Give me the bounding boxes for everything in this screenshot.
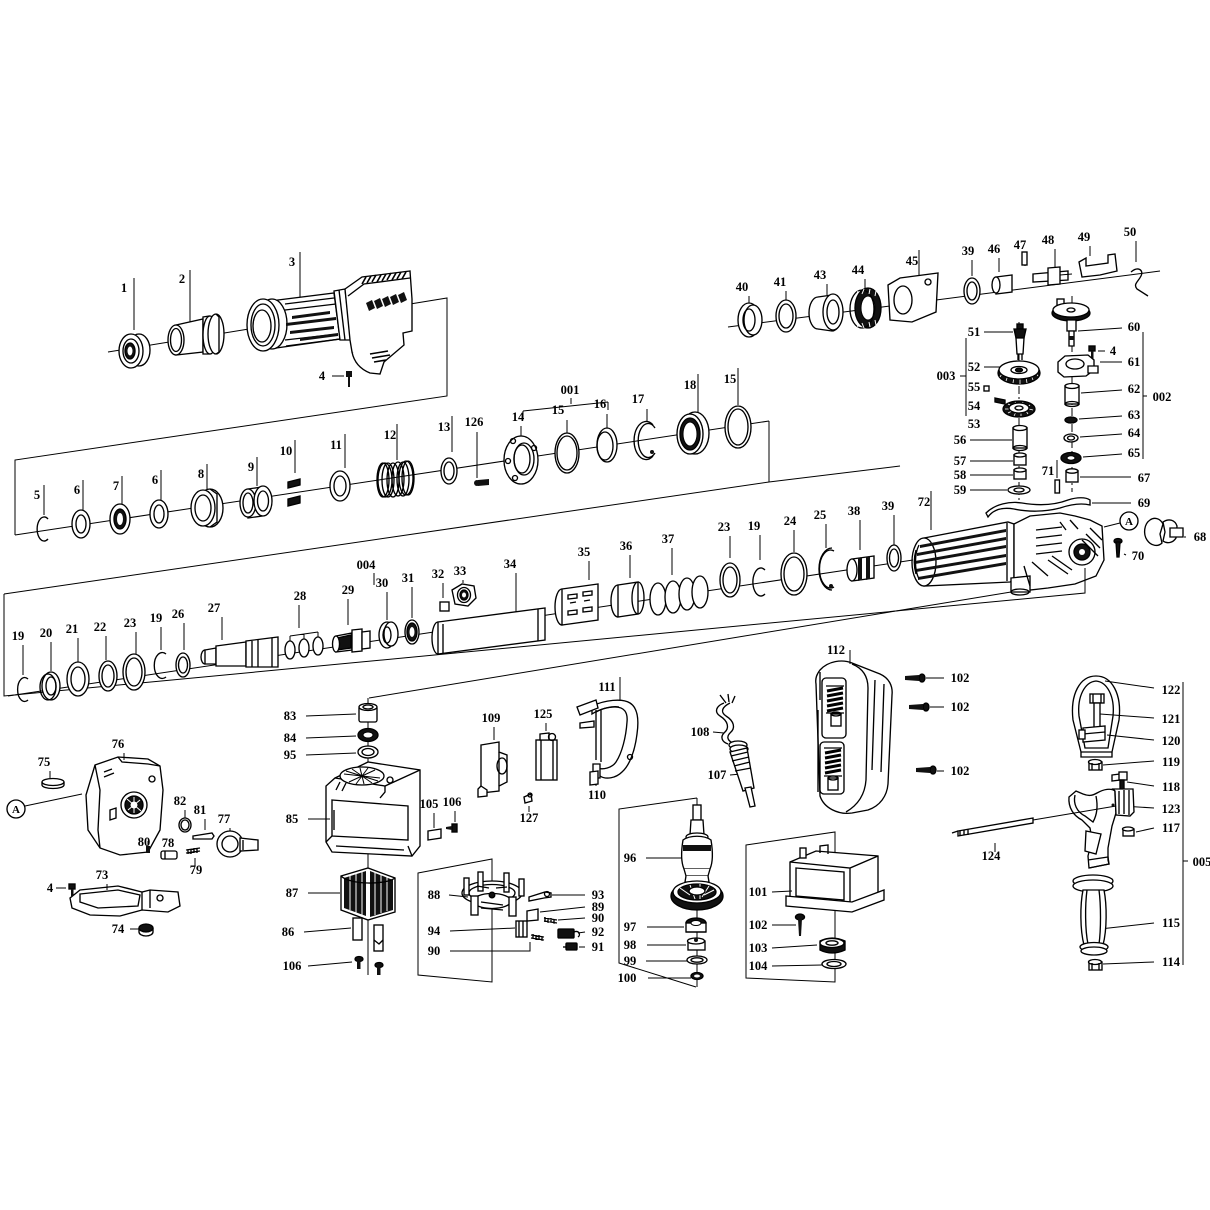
svg-text:2: 2 (179, 272, 185, 286)
svg-text:003: 003 (937, 369, 956, 383)
svg-text:103: 103 (749, 941, 768, 955)
svg-text:63: 63 (1128, 408, 1141, 422)
svg-text:56: 56 (954, 433, 967, 447)
svg-text:114: 114 (1162, 955, 1181, 969)
svg-text:60: 60 (1128, 320, 1141, 334)
svg-text:111: 111 (598, 680, 615, 694)
svg-text:3: 3 (289, 255, 295, 269)
svg-text:86: 86 (282, 925, 295, 939)
svg-text:119: 119 (1162, 755, 1180, 769)
svg-text:25: 25 (814, 508, 827, 522)
svg-text:4: 4 (1110, 344, 1117, 358)
svg-text:19: 19 (12, 629, 25, 643)
svg-text:110: 110 (588, 788, 606, 802)
svg-text:6: 6 (152, 473, 158, 487)
svg-text:9: 9 (248, 460, 254, 474)
svg-text:15: 15 (724, 372, 737, 386)
svg-text:33: 33 (454, 564, 467, 578)
svg-text:108: 108 (691, 725, 710, 739)
svg-text:81: 81 (194, 803, 207, 817)
svg-text:27: 27 (208, 601, 221, 615)
svg-text:47: 47 (1014, 238, 1027, 252)
svg-text:94: 94 (428, 924, 441, 938)
svg-text:92: 92 (592, 925, 605, 939)
svg-text:78: 78 (162, 836, 175, 850)
svg-text:109: 109 (482, 711, 501, 725)
svg-text:106: 106 (283, 959, 302, 973)
svg-text:84: 84 (284, 731, 297, 745)
svg-text:58: 58 (954, 468, 967, 482)
svg-text:102: 102 (749, 918, 768, 932)
svg-text:95: 95 (284, 748, 297, 762)
svg-text:26: 26 (172, 607, 185, 621)
svg-text:39: 39 (882, 499, 895, 513)
svg-text:38: 38 (848, 504, 861, 518)
svg-text:101: 101 (749, 885, 768, 899)
svg-text:126: 126 (465, 415, 484, 429)
svg-text:82: 82 (174, 794, 187, 808)
svg-text:65: 65 (1128, 446, 1141, 460)
svg-text:1: 1 (121, 281, 127, 295)
svg-text:117: 117 (1162, 821, 1180, 835)
svg-text:106: 106 (443, 795, 462, 809)
svg-text:4: 4 (319, 369, 326, 383)
svg-text:67: 67 (1138, 471, 1151, 485)
svg-text:14: 14 (512, 410, 525, 424)
svg-text:5: 5 (34, 488, 40, 502)
svg-text:76: 76 (112, 737, 125, 751)
svg-text:122: 122 (1162, 683, 1181, 697)
svg-text:75: 75 (38, 755, 51, 769)
svg-text:99: 99 (624, 954, 637, 968)
svg-text:4: 4 (47, 881, 54, 895)
svg-text:107: 107 (708, 768, 727, 782)
svg-text:51: 51 (968, 325, 981, 339)
svg-text:40: 40 (736, 280, 749, 294)
svg-text:A: A (1125, 516, 1133, 528)
svg-text:90: 90 (592, 911, 605, 925)
svg-text:83: 83 (284, 709, 297, 723)
svg-text:100: 100 (618, 971, 637, 985)
svg-text:19: 19 (748, 519, 761, 533)
svg-text:88: 88 (428, 888, 441, 902)
svg-text:54: 54 (968, 399, 981, 413)
svg-text:21: 21 (66, 622, 79, 636)
svg-text:28: 28 (294, 589, 307, 603)
svg-text:A: A (12, 804, 20, 816)
svg-text:120: 120 (1162, 734, 1181, 748)
svg-text:18: 18 (684, 378, 697, 392)
svg-text:70: 70 (1132, 549, 1145, 563)
svg-text:10: 10 (280, 444, 293, 458)
svg-text:13: 13 (438, 420, 451, 434)
svg-text:36: 36 (620, 539, 633, 553)
svg-text:39: 39 (962, 244, 975, 258)
svg-text:53: 53 (968, 417, 981, 431)
svg-text:46: 46 (988, 242, 1001, 256)
svg-text:90: 90 (428, 944, 441, 958)
svg-text:8: 8 (198, 467, 204, 481)
svg-text:37: 37 (662, 532, 675, 546)
svg-text:112: 112 (827, 643, 845, 657)
svg-text:87: 87 (286, 886, 299, 900)
svg-text:77: 77 (218, 812, 231, 826)
svg-text:49: 49 (1078, 230, 1091, 244)
svg-text:64: 64 (1128, 426, 1141, 440)
svg-text:105: 105 (420, 797, 439, 811)
svg-text:118: 118 (1162, 780, 1180, 794)
svg-text:002: 002 (1153, 390, 1172, 404)
svg-text:55: 55 (968, 380, 981, 394)
svg-text:48: 48 (1042, 233, 1055, 247)
svg-text:34: 34 (504, 557, 517, 571)
svg-text:6: 6 (74, 483, 80, 497)
svg-text:91: 91 (592, 940, 605, 954)
svg-text:19: 19 (150, 611, 163, 625)
svg-text:004: 004 (357, 558, 377, 572)
svg-text:23: 23 (718, 520, 731, 534)
svg-text:16: 16 (594, 397, 607, 411)
svg-text:121: 121 (1162, 712, 1181, 726)
svg-text:23: 23 (124, 616, 137, 630)
svg-text:12: 12 (384, 428, 397, 442)
svg-text:97: 97 (624, 920, 637, 934)
svg-text:005: 005 (1193, 855, 1210, 869)
svg-text:96: 96 (624, 851, 637, 865)
svg-text:73: 73 (96, 868, 109, 882)
svg-text:125: 125 (534, 707, 553, 721)
svg-text:102: 102 (951, 671, 970, 685)
svg-text:79: 79 (190, 863, 203, 877)
svg-text:15: 15 (552, 403, 565, 417)
svg-text:123: 123 (1162, 802, 1181, 816)
svg-text:74: 74 (112, 922, 125, 936)
svg-text:62: 62 (1128, 382, 1141, 396)
svg-text:85: 85 (286, 812, 299, 826)
svg-text:102: 102 (951, 700, 970, 714)
svg-text:44: 44 (852, 263, 865, 277)
svg-text:59: 59 (954, 483, 967, 497)
svg-text:31: 31 (402, 571, 415, 585)
svg-text:11: 11 (330, 438, 342, 452)
svg-text:69: 69 (1138, 496, 1151, 510)
svg-text:104: 104 (749, 959, 769, 973)
svg-text:32: 32 (432, 567, 445, 581)
svg-text:124: 124 (982, 849, 1002, 863)
svg-text:68: 68 (1194, 530, 1207, 544)
svg-text:50: 50 (1124, 225, 1137, 239)
svg-text:71: 71 (1042, 464, 1055, 478)
svg-text:20: 20 (40, 626, 53, 640)
svg-text:115: 115 (1162, 916, 1180, 930)
svg-text:30: 30 (376, 576, 389, 590)
svg-text:22: 22 (94, 620, 107, 634)
svg-text:52: 52 (968, 360, 981, 374)
svg-text:41: 41 (774, 275, 787, 289)
svg-text:127: 127 (520, 811, 539, 825)
svg-text:001: 001 (561, 383, 580, 397)
svg-text:7: 7 (113, 479, 119, 493)
svg-text:98: 98 (624, 938, 637, 952)
svg-text:17: 17 (632, 392, 645, 406)
svg-text:45: 45 (906, 254, 919, 268)
svg-text:24: 24 (784, 514, 797, 528)
svg-text:29: 29 (342, 583, 355, 597)
svg-text:57: 57 (954, 454, 967, 468)
svg-text:43: 43 (814, 268, 827, 282)
svg-text:72: 72 (918, 495, 931, 509)
svg-text:61: 61 (1128, 355, 1141, 369)
svg-text:35: 35 (578, 545, 591, 559)
svg-text:102: 102 (951, 764, 970, 778)
